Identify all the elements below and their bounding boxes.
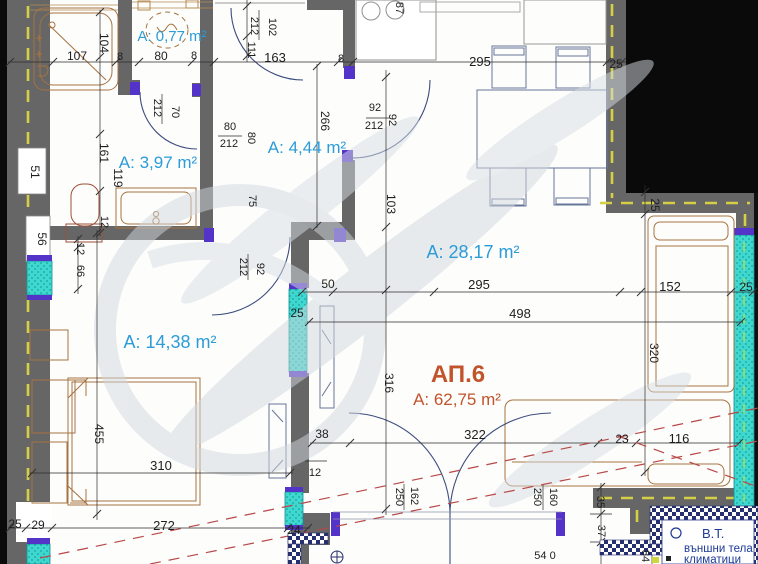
- black-edge-left: [0, 0, 7, 564]
- wall-inner-2: [291, 373, 309, 493]
- dimension-label: 12: [98, 216, 110, 228]
- dimension-label: 103: [384, 194, 398, 214]
- dimension-label: 212: [151, 99, 163, 117]
- dimension-label: 250: [393, 488, 405, 506]
- dimension-label: 212: [248, 17, 260, 35]
- room-area-label: А: 4,44 m²: [268, 138, 347, 157]
- dimension-label: 37: [595, 525, 607, 537]
- dimension-label: 25: [8, 517, 22, 531]
- dimension-label: 104: [97, 33, 111, 53]
- dimension-label: 50: [321, 277, 335, 291]
- dimension-label: 56: [35, 232, 49, 246]
- dimension-label: 212: [237, 258, 249, 276]
- legend-line2: климатици: [684, 554, 741, 564]
- room-area-label: А: 14,38 m²: [123, 332, 216, 352]
- wall-bottomright-stub: [630, 508, 650, 534]
- dimension-label: 12: [309, 467, 321, 479]
- legend-box: В.Т. външни тела климатици: [652, 520, 754, 564]
- dimension-label: 8: [338, 53, 344, 65]
- dimension-label: 12: [74, 243, 86, 255]
- dimension-label: 75: [246, 195, 258, 207]
- dimension-label: 316: [382, 373, 396, 393]
- dimension-label: 23: [615, 432, 629, 446]
- window: [27, 261, 52, 295]
- dimension-label: 212: [365, 120, 383, 132]
- dimension-label: 162: [408, 487, 420, 505]
- dimension-label: 80: [224, 121, 236, 133]
- legend-square-icon: [666, 556, 671, 561]
- window: [27, 544, 50, 564]
- dimension-label: 322: [464, 427, 486, 442]
- room-area-label: А: 0,77 m²: [137, 28, 206, 45]
- chair: [554, 168, 590, 205]
- dimension-label: 152: [659, 279, 681, 294]
- bed-right: [648, 216, 734, 392]
- dimension-label: 455: [92, 424, 106, 444]
- hinge-mark: [186, 0, 198, 8]
- dimension-label: 160: [547, 488, 559, 506]
- dimension-label: 102: [266, 18, 278, 36]
- dimension-label: 310: [150, 458, 172, 473]
- room-area-label: АП.6: [431, 361, 485, 388]
- dimension-label: 70: [169, 106, 181, 118]
- balcony-sill: [333, 512, 562, 519]
- kitchen-block: [524, 0, 606, 44]
- wall-kitchen-side: [343, 0, 355, 68]
- dimension-label: 87: [393, 2, 405, 14]
- room-area-label: А: 62,75 m²: [413, 390, 501, 409]
- dimension-label: 92: [386, 114, 398, 126]
- legend-title: В.Т.: [702, 526, 724, 541]
- wall-wc-right: [200, 0, 213, 97]
- dimension-label: 250: [531, 488, 543, 506]
- dimension-label: 266: [318, 111, 332, 131]
- survey-marker-icon: [331, 551, 343, 563]
- dimension-label: 8: [191, 50, 197, 62]
- room-area-label: А: 28,17 m²: [426, 242, 519, 262]
- dimension-label: 25: [648, 198, 662, 212]
- dimension-label: 24: [287, 523, 301, 537]
- dimension-label: 54 0: [534, 550, 555, 562]
- dimension-label: 116: [669, 431, 690, 446]
- dimension-label: 38: [315, 427, 329, 441]
- dimension-label: 161: [97, 143, 111, 163]
- dimension-label: 295: [469, 54, 491, 69]
- dimension-label: 8: [117, 51, 123, 63]
- room-area-label: А: 3,97 m²: [119, 153, 198, 172]
- dimension-label: 25: [290, 306, 304, 320]
- chair: [492, 46, 526, 88]
- window: [285, 492, 303, 526]
- dimension-label: 111: [245, 42, 257, 59]
- dimension-label: 80: [245, 132, 257, 144]
- dimension-label: 25: [609, 57, 623, 71]
- dimension-label: 107: [67, 49, 87, 63]
- dimension-label: 163: [264, 50, 286, 65]
- floor-plan-svg: В.Т. външни тела климатици 1078808163829…: [0, 0, 758, 564]
- dimension-label: 272: [153, 518, 175, 533]
- dimension-label: 29: [31, 518, 45, 532]
- dimension-label: 80: [154, 49, 168, 63]
- dimension-label: 84: [639, 550, 651, 562]
- floor-plan: В.Т. външни тела климатици 1078808163829…: [0, 0, 758, 564]
- dimension-label: 66: [74, 265, 86, 277]
- door-arc: [140, 92, 197, 149]
- dimension-label: 498: [509, 306, 531, 321]
- legend-green-square: [652, 557, 659, 563]
- dimension-label: 25: [739, 280, 753, 294]
- dimension-label: 92: [254, 263, 266, 275]
- dimension-label: 212: [220, 138, 238, 150]
- dimension-label: 35: [594, 496, 606, 508]
- dimension-label: 320: [647, 343, 661, 363]
- dimension-label: 92: [369, 102, 381, 114]
- black-edge-right: [754, 193, 758, 513]
- dimension-label: 51: [28, 165, 42, 179]
- black-block-topright: [626, 0, 758, 193]
- chair: [556, 47, 590, 88]
- dimension-label: 295: [468, 277, 490, 292]
- wall-bath-right: [200, 95, 213, 240]
